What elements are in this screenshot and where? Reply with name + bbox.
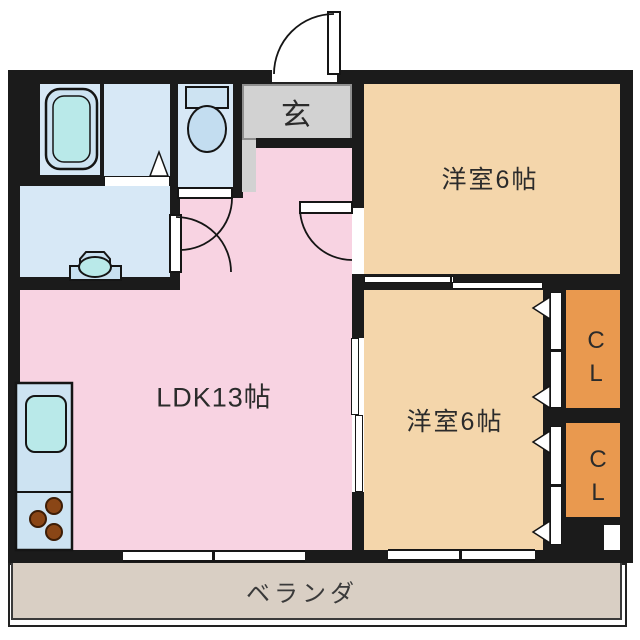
bedroom-bottom-label: 洋室6帖: [407, 402, 504, 438]
toilet-door-arc: [180, 198, 232, 250]
ldk-label: LDK13帖: [156, 376, 272, 415]
genkan-label: 玄: [281, 90, 311, 134]
floor-plan: 洋室6帖 洋室6帖 LDK13帖 玄 CL CL ベランダ: [0, 0, 640, 640]
bathtub-inner: [53, 96, 90, 162]
bedroom-top-label: 洋室6帖: [442, 160, 539, 196]
washroom-door-leaf: [170, 215, 181, 272]
balcony-label: ベランダ: [246, 574, 358, 609]
stove-burner: [46, 498, 62, 514]
stove-burner: [30, 511, 46, 527]
bedroom-door-arc: [300, 208, 352, 260]
closet-door-triangle: [533, 386, 550, 408]
toilet-bowl: [188, 106, 226, 152]
closet-bottom-label: CL: [585, 443, 611, 509]
fold-door-triangle: [150, 152, 168, 176]
entrance-door-arc: [274, 14, 334, 74]
fixtures-layer: [0, 0, 640, 640]
closet-door-triangle: [533, 521, 550, 543]
closet-top-label: CL: [583, 324, 609, 390]
entrance-door-leaf: [328, 12, 340, 74]
kitchen-sink: [26, 396, 66, 452]
toilet-door-leaf: [178, 188, 232, 198]
washbasin-bowl: [79, 257, 111, 277]
closet-door-triangle: [533, 431, 550, 453]
bedroom-door-leaf: [300, 202, 352, 213]
toilet-tank: [186, 87, 228, 108]
stove-burner: [46, 524, 62, 540]
closet-door-triangle: [533, 297, 550, 319]
